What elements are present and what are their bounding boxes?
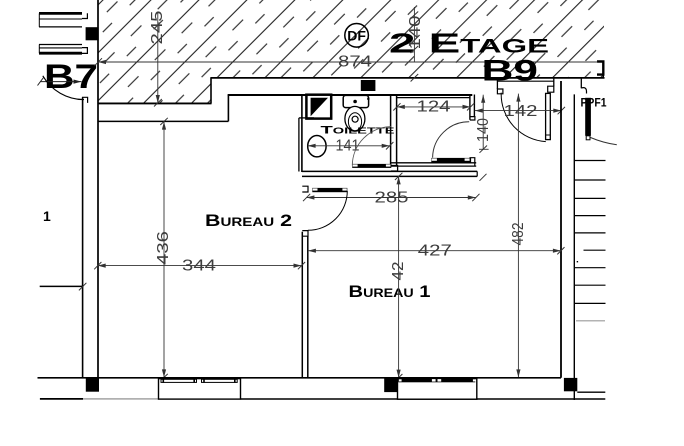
svg-text:140: 140 [475, 118, 492, 142]
svg-text:142: 142 [504, 103, 538, 120]
svg-text:Bureau 2: Bureau 2 [205, 211, 292, 230]
svg-text:124: 124 [417, 99, 451, 116]
svg-text:285: 285 [375, 190, 409, 207]
svg-text:141: 141 [336, 138, 360, 155]
svg-text:140: 140 [407, 15, 424, 49]
svg-text:DF: DF [347, 28, 366, 44]
svg-text:874: 874 [338, 54, 372, 71]
svg-text:344: 344 [182, 258, 216, 275]
svg-text:1: 1 [43, 208, 51, 224]
svg-text:Toilette: Toilette [321, 125, 396, 137]
svg-text:42: 42 [390, 262, 407, 281]
svg-text:PPF1: PPF1 [581, 98, 608, 110]
svg-text:482: 482 [510, 223, 527, 246]
svg-text:B9: B9 [482, 54, 539, 87]
svg-text:436: 436 [155, 231, 172, 265]
svg-text:Bureau 1: Bureau 1 [349, 282, 431, 301]
svg-text:427: 427 [418, 243, 452, 260]
svg-text:245: 245 [149, 11, 166, 45]
svg-text:B7: B7 [44, 58, 98, 96]
